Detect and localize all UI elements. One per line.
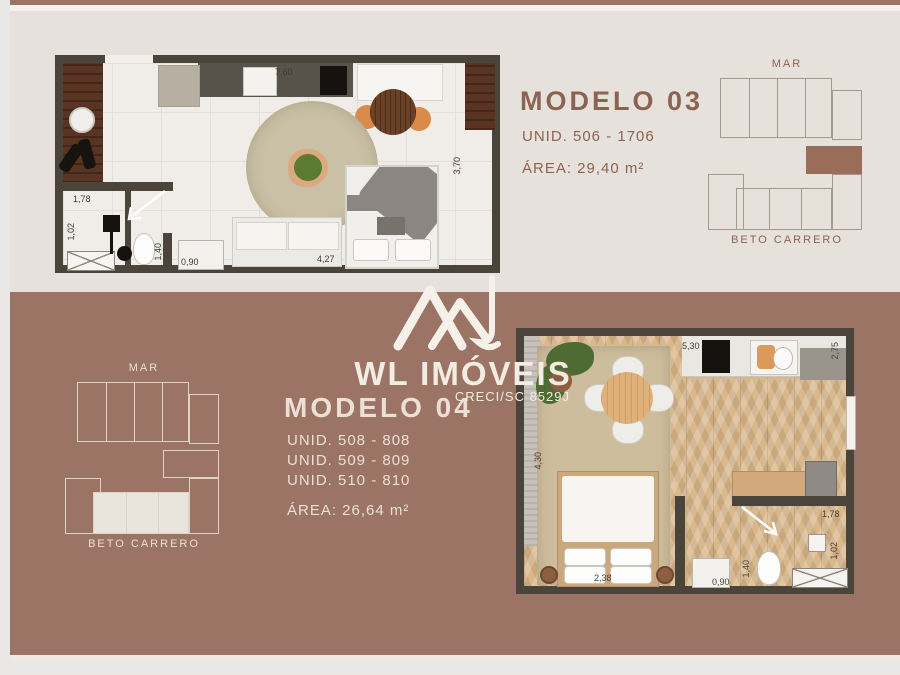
dim-label: 7,60: [275, 68, 293, 77]
toilet: [133, 233, 155, 265]
entry-door-gap: [105, 55, 153, 63]
unit-row-top: [77, 382, 189, 442]
dim-label: 2,75: [831, 342, 840, 360]
shower-box: [792, 568, 848, 588]
dim-label: 4,27: [317, 255, 335, 264]
sitemap-modelo-04: MAR BETO CARRERO: [60, 362, 228, 550]
model03-title: MODELO 03: [520, 86, 703, 117]
model03-area: ÁREA: 29,40 m²: [522, 160, 644, 177]
window: [846, 396, 856, 450]
cooktop: [320, 66, 347, 95]
dim-label: 1,02: [67, 223, 76, 241]
pillow: [564, 548, 606, 566]
unit-cell: [189, 394, 219, 444]
unit-cell: [832, 174, 862, 230]
model04-area: ÁREA: 26,64 m²: [287, 502, 409, 519]
sitemap-beto-carrero-label: BETO CARRERO: [703, 234, 871, 246]
dim-label: 0,90: [712, 578, 730, 587]
pillow: [395, 239, 431, 261]
pillow: [353, 239, 389, 261]
unit-cell: [832, 90, 862, 140]
unit-cell: [189, 478, 219, 534]
unit-row-bottom: [736, 188, 832, 230]
toilet: [757, 551, 781, 585]
round-basin: [117, 246, 132, 261]
dim-label: 0,90: [181, 258, 199, 267]
round-dining-table: [601, 372, 653, 424]
bed: [557, 471, 659, 587]
model03-units: UNID. 506 - 1706: [522, 128, 655, 145]
dim-label: 1,78: [73, 195, 91, 204]
entry-arrow-icon: [123, 189, 167, 223]
bed: [345, 165, 439, 269]
brand-creci: CRECI/SC 8529J: [420, 389, 570, 404]
bathroom-sink: [808, 534, 826, 552]
sofa-cushion: [288, 222, 339, 250]
cooktop: [702, 340, 730, 373]
highlighted-unit: [806, 146, 862, 174]
unit-cell: [163, 450, 219, 478]
dim-label: 1,78: [822, 510, 840, 519]
left-margin-strip: [0, 0, 10, 675]
building-footprint: [706, 74, 868, 230]
building-footprint: [63, 378, 225, 534]
bathroom-sink: [103, 215, 120, 232]
kitchen-sink: [243, 67, 277, 96]
sideboard: [732, 471, 807, 498]
sofa-cushion: [236, 222, 287, 250]
side-table: [158, 65, 200, 107]
dim-label: 1,40: [154, 243, 163, 261]
sitemap-modelo-03: MAR BETO CARRERO: [703, 58, 871, 246]
model04-units-3: UNID. 510 - 810: [287, 472, 410, 489]
brand-name: WL IMÓVEIS: [348, 355, 578, 393]
bed-duvet: [562, 476, 654, 542]
bottom-white-band: [10, 655, 900, 660]
planter: [656, 566, 674, 584]
model04-units-1: UNID. 508 - 808: [287, 432, 410, 449]
sitemap-beto-carrero-label: BETO CARRERO: [60, 538, 228, 550]
planter: [540, 566, 558, 584]
unit-row-top: [720, 78, 832, 138]
bathroom-wall: [675, 496, 685, 586]
dim-label: 2,38: [594, 574, 612, 583]
rug-plant-motif: [294, 154, 322, 181]
bed-tray: [377, 217, 405, 235]
sink-basin: [773, 347, 793, 370]
dim-label: 1,40: [742, 560, 751, 578]
highlighted-unit-row: [93, 492, 189, 534]
wardrobe: [465, 63, 495, 130]
shower-box: [67, 251, 115, 271]
sitemap-mar-label: MAR: [703, 58, 871, 70]
round-dining-table: [370, 89, 416, 135]
sitemap-mar-label: MAR: [60, 362, 228, 374]
dim-label: 1,02: [830, 542, 839, 560]
floorplan-modelo-03: 7,60 3,70 4,27 1,78 1,02 1,40 0,90: [55, 55, 500, 273]
dim-label: 5,30: [682, 342, 700, 351]
entry-arrow-icon: [738, 504, 782, 540]
bathroom-wall: [163, 233, 172, 273]
appliance: [805, 461, 837, 500]
dim-label: 3,70: [453, 157, 462, 175]
pillow: [610, 566, 652, 584]
pillow: [610, 548, 652, 566]
brochure-page: 7,60 3,70 4,27 1,78 1,02 1,40 0,90 MODEL…: [0, 0, 900, 675]
model04-units-2: UNID. 509 - 809: [287, 452, 410, 469]
wl-logo-icon: [392, 272, 502, 352]
round-table-lamp: [69, 107, 95, 133]
kitchen-sink: [750, 340, 798, 375]
dim-label: 4,30: [534, 452, 543, 470]
